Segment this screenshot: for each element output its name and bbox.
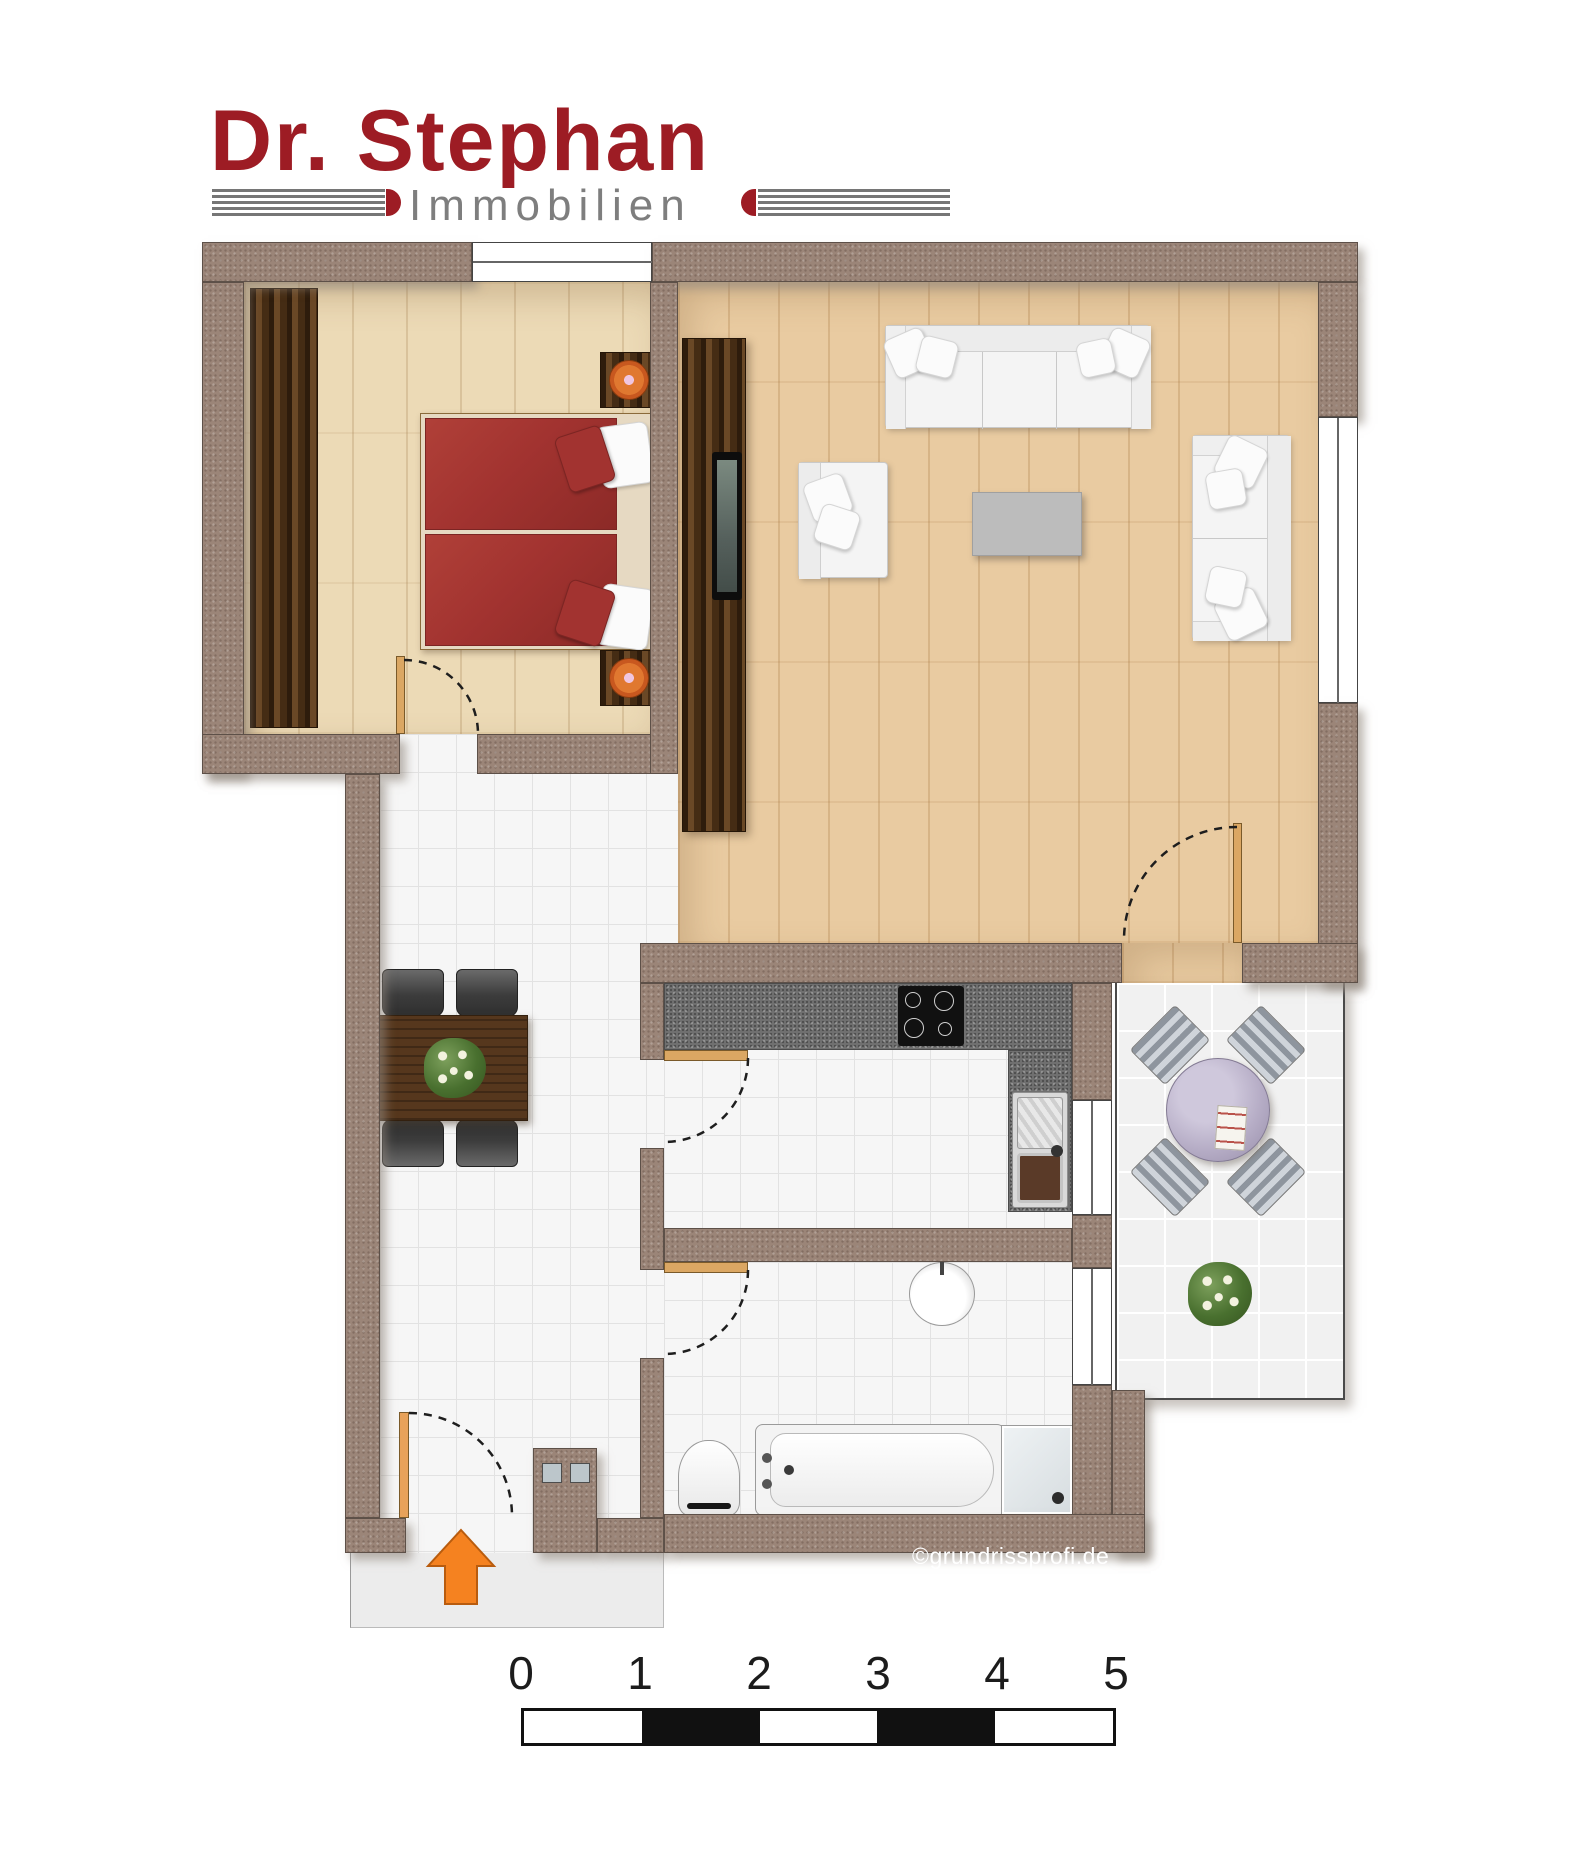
balcony-door-threshold-floor bbox=[1122, 943, 1242, 983]
cooktop-burner bbox=[934, 991, 954, 1011]
sofa-seat-divider bbox=[1056, 352, 1057, 429]
window-frame-line bbox=[473, 261, 653, 263]
tv bbox=[712, 452, 742, 600]
bathtub-basin bbox=[770, 1433, 994, 1507]
dining-chair bbox=[382, 969, 444, 1017]
kitchen-counter-top bbox=[664, 983, 1072, 1050]
balcony-door-leaf bbox=[1233, 823, 1242, 943]
bathtub bbox=[755, 1424, 1005, 1516]
wall bbox=[1242, 943, 1358, 983]
sofa-pillow bbox=[1203, 564, 1248, 609]
kitchen-window bbox=[1072, 1100, 1112, 1215]
scale-segment bbox=[877, 1711, 995, 1743]
wall bbox=[477, 734, 655, 774]
company-logo: Dr. Stephan Immobilien bbox=[0, 0, 1581, 240]
sofa-pillow bbox=[1075, 337, 1118, 380]
sink-faucet bbox=[1051, 1145, 1063, 1157]
toilet-seat-line bbox=[687, 1503, 731, 1509]
kitchen-sink bbox=[1012, 1092, 1068, 1208]
wall bbox=[640, 1358, 664, 1518]
armchair bbox=[798, 462, 888, 578]
scale-label-0: 0 bbox=[491, 1646, 551, 1700]
sofa-pillow bbox=[914, 334, 960, 380]
scale-label-5: 5 bbox=[1086, 1646, 1146, 1700]
scale-segment bbox=[524, 1711, 642, 1743]
logo-subtitle: Immobilien bbox=[409, 184, 692, 228]
logo-stripes-right bbox=[758, 189, 950, 216]
wall bbox=[640, 1148, 664, 1270]
sink-basin bbox=[1017, 1153, 1063, 1203]
double-bed bbox=[420, 413, 658, 650]
wall bbox=[1072, 1215, 1112, 1268]
dining-chair bbox=[382, 1119, 444, 1167]
wall bbox=[652, 242, 1358, 282]
bedroom-door-leaf bbox=[396, 656, 405, 734]
sofa-seat-divider bbox=[1193, 538, 1267, 539]
shower-drain bbox=[1052, 1492, 1064, 1504]
logo-cap-right bbox=[741, 189, 756, 216]
entrance-arrow-icon bbox=[424, 1528, 498, 1608]
nightstand-lamp-bottom bbox=[609, 658, 649, 698]
scale-segment bbox=[760, 1711, 878, 1743]
wall bbox=[345, 1518, 406, 1553]
toilet bbox=[678, 1440, 740, 1516]
bathtub-faucet bbox=[762, 1479, 772, 1489]
scale-bar-track bbox=[521, 1708, 1116, 1746]
living-room-window bbox=[1318, 417, 1358, 703]
dining-chair bbox=[456, 969, 518, 1017]
wardrobe bbox=[250, 288, 318, 728]
sofa-seat-divider bbox=[982, 352, 983, 429]
glass-block bbox=[542, 1463, 562, 1483]
bathtub-drain bbox=[784, 1465, 794, 1475]
scale-bar: 0 1 2 3 4 5 bbox=[491, 1646, 1151, 1756]
bathroom-window bbox=[1072, 1268, 1112, 1385]
window-frame-line bbox=[1337, 418, 1339, 704]
logo-stripes-left bbox=[212, 189, 385, 216]
wall bbox=[650, 282, 678, 774]
sofa-pillow bbox=[1204, 467, 1248, 511]
wall bbox=[664, 1228, 1072, 1262]
wall bbox=[1072, 983, 1112, 1100]
tv-screen bbox=[717, 460, 737, 592]
magazine bbox=[1215, 1105, 1248, 1151]
dining-chair bbox=[456, 1119, 518, 1167]
entrance-door-leaf bbox=[399, 1412, 409, 1518]
glass-block-pillar bbox=[533, 1448, 597, 1553]
bathtub-faucet bbox=[762, 1453, 772, 1463]
window-frame-line bbox=[1091, 1101, 1093, 1216]
scale-label-2: 2 bbox=[729, 1646, 789, 1700]
scale-segment bbox=[995, 1711, 1113, 1743]
kitchen-door-leaf bbox=[664, 1050, 748, 1061]
coffee-table bbox=[972, 492, 1082, 556]
sink-drainboard bbox=[1017, 1097, 1063, 1149]
wall bbox=[202, 282, 244, 774]
window-frame-line bbox=[1091, 1269, 1093, 1386]
wall bbox=[640, 943, 1122, 983]
wall bbox=[1318, 282, 1358, 417]
glass-block bbox=[570, 1463, 590, 1483]
nightstand-lamp-top bbox=[609, 360, 649, 400]
copyright-watermark: ©grundrissprofi.de bbox=[912, 1543, 1109, 1570]
logo-cap-left bbox=[386, 189, 401, 216]
shower-tray bbox=[1002, 1426, 1072, 1514]
wall bbox=[202, 734, 400, 774]
wall bbox=[597, 1518, 664, 1553]
scale-label-4: 4 bbox=[967, 1646, 1027, 1700]
cooktop bbox=[898, 986, 964, 1046]
sofa-backrest bbox=[1267, 436, 1291, 641]
washbasin bbox=[909, 1262, 975, 1326]
entrance-mat bbox=[350, 1553, 664, 1628]
scale-label-3: 3 bbox=[848, 1646, 908, 1700]
bathroom-door-leaf bbox=[664, 1262, 748, 1273]
cooktop-burner bbox=[905, 992, 921, 1008]
logo-title: Dr. Stephan bbox=[210, 98, 710, 184]
scale-segment bbox=[642, 1711, 760, 1743]
cooktop-burner bbox=[904, 1018, 924, 1038]
scale-label-1: 1 bbox=[610, 1646, 670, 1700]
wall bbox=[640, 983, 664, 1060]
cooktop-burner bbox=[938, 1022, 952, 1036]
sofa-two-seat bbox=[1192, 435, 1290, 640]
floorplan-page: Dr. Stephan Immobilien bbox=[0, 0, 1581, 1856]
wall bbox=[1318, 703, 1358, 983]
bedroom-window bbox=[472, 242, 652, 282]
sofa-three-seat bbox=[885, 325, 1150, 428]
wall bbox=[345, 774, 380, 1518]
wall bbox=[202, 242, 472, 282]
